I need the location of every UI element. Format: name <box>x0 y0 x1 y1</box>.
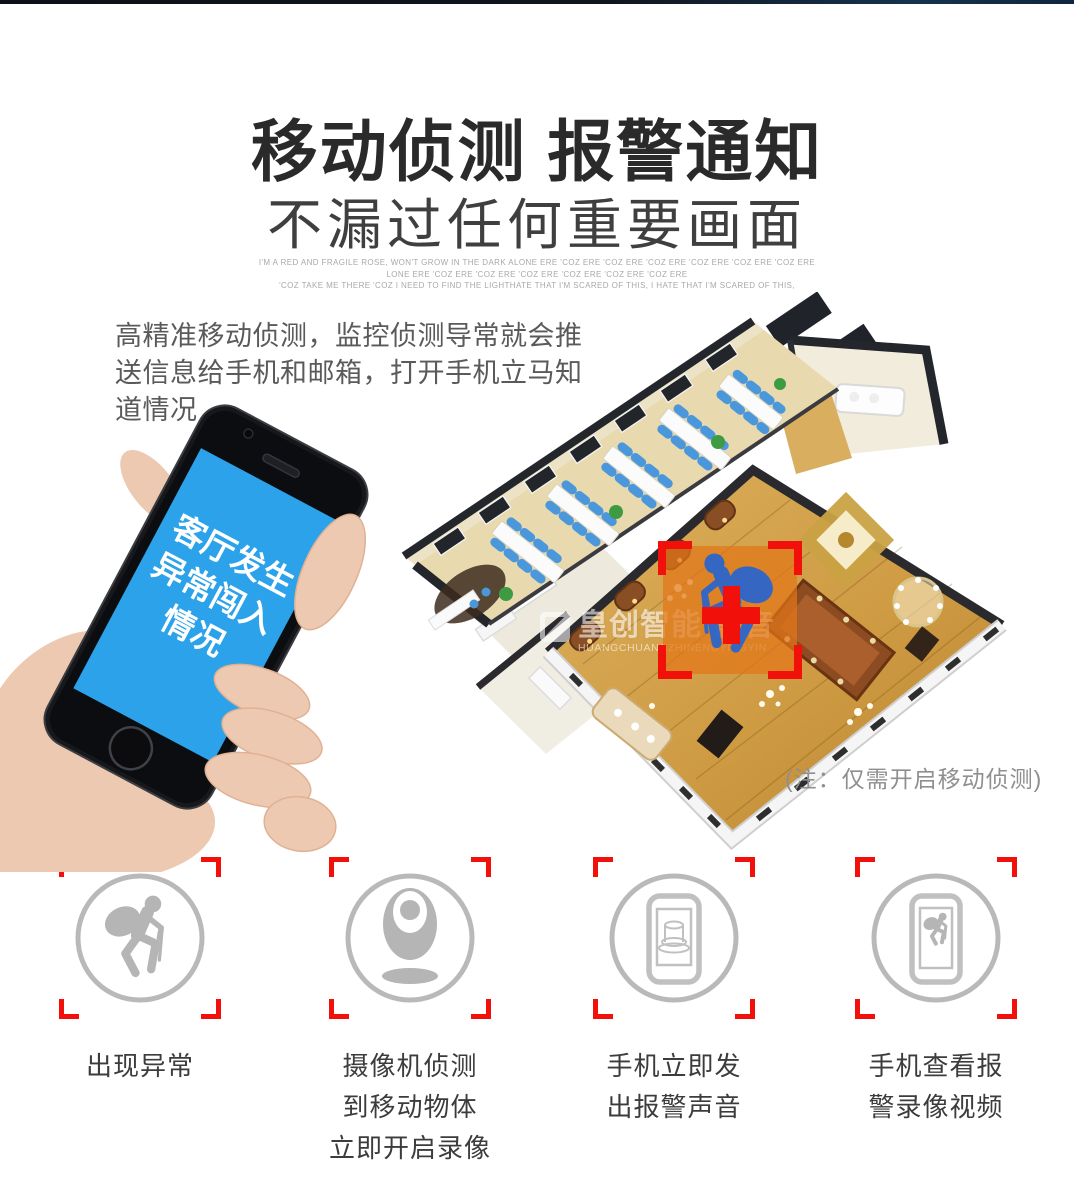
feature-item-abnormal <box>59 857 221 1019</box>
fineprint-line: I'M A RED AND FRAGILE ROSE, WON'T GROW I… <box>0 257 1074 269</box>
marketing-page: 移动侦测 报警通知 不漏过任何重要画面 I'M A RED AND FRAGIL… <box>0 0 1074 1196</box>
hand-holding-phone: 客厅发生 异常闯入 情况 <box>0 392 400 872</box>
feature-item-camera-detect <box>329 857 491 1019</box>
bracket-corner <box>768 541 802 575</box>
feature-label: 摄像机侦测 到移动物体 立即开启录像 <box>280 1046 540 1169</box>
phone-playback-icon <box>870 872 1002 1004</box>
fineprint-line: LONE ERE 'COZ ERE 'COZ ERE 'COZ ERE 'COZ… <box>0 269 1074 281</box>
top-divider-bar <box>0 0 1074 4</box>
phone-alarm-icon <box>608 872 740 1004</box>
bracket-corner <box>658 541 692 575</box>
feature-label: 手机查看报 警录像视频 <box>806 1046 1066 1128</box>
ip-camera-icon <box>344 872 476 1004</box>
brand-logo-icon <box>540 612 570 642</box>
fineprint-line: 'COZ TAKE ME THERE 'COZ I NEED TO FIND T… <box>0 280 1074 292</box>
page-subtitle: 不漏过任何重要画面 <box>0 180 1074 260</box>
alarm-cross-icon <box>723 586 740 644</box>
floorplan-note: (注：仅需开启移动侦测) <box>785 760 1042 794</box>
feature-item-phone-review <box>855 857 1017 1019</box>
decorative-fineprint: I'M A RED AND FRAGILE ROSE, WON'T GROW I… <box>0 257 1074 292</box>
bracket-corner <box>768 645 802 679</box>
feature-label: 出现异常 <box>10 1046 270 1087</box>
feature-item-phone-alarm <box>593 857 755 1019</box>
bracket-corner <box>658 645 692 679</box>
feature-label: 手机立即发 出报警声音 <box>544 1046 804 1128</box>
intruder-walking-icon <box>74 872 206 1004</box>
motion-detection-box <box>658 541 802 679</box>
